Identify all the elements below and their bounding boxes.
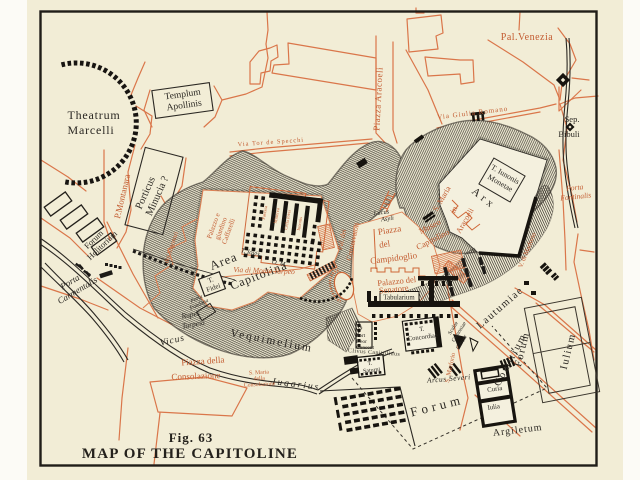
svg-text:Sep.: Sep.: [565, 114, 580, 124]
svg-text:Consolazione: Consolazione: [171, 370, 220, 382]
svg-text:Fig. 63: Fig. 63: [169, 430, 214, 445]
svg-text:del: del: [378, 238, 391, 250]
svg-text:Theatrum: Theatrum: [67, 108, 120, 122]
svg-text:Bibuli: Bibuli: [558, 129, 580, 139]
svg-text:Tabularium: Tabularium: [383, 295, 415, 302]
svg-text:Marcelli: Marcelli: [67, 123, 114, 137]
svg-text:Pal.Venezia: Pal.Venezia: [501, 32, 553, 43]
svg-text:MAP OF THE CAPITOLINE: MAP OF THE CAPITOLINE: [82, 446, 298, 462]
